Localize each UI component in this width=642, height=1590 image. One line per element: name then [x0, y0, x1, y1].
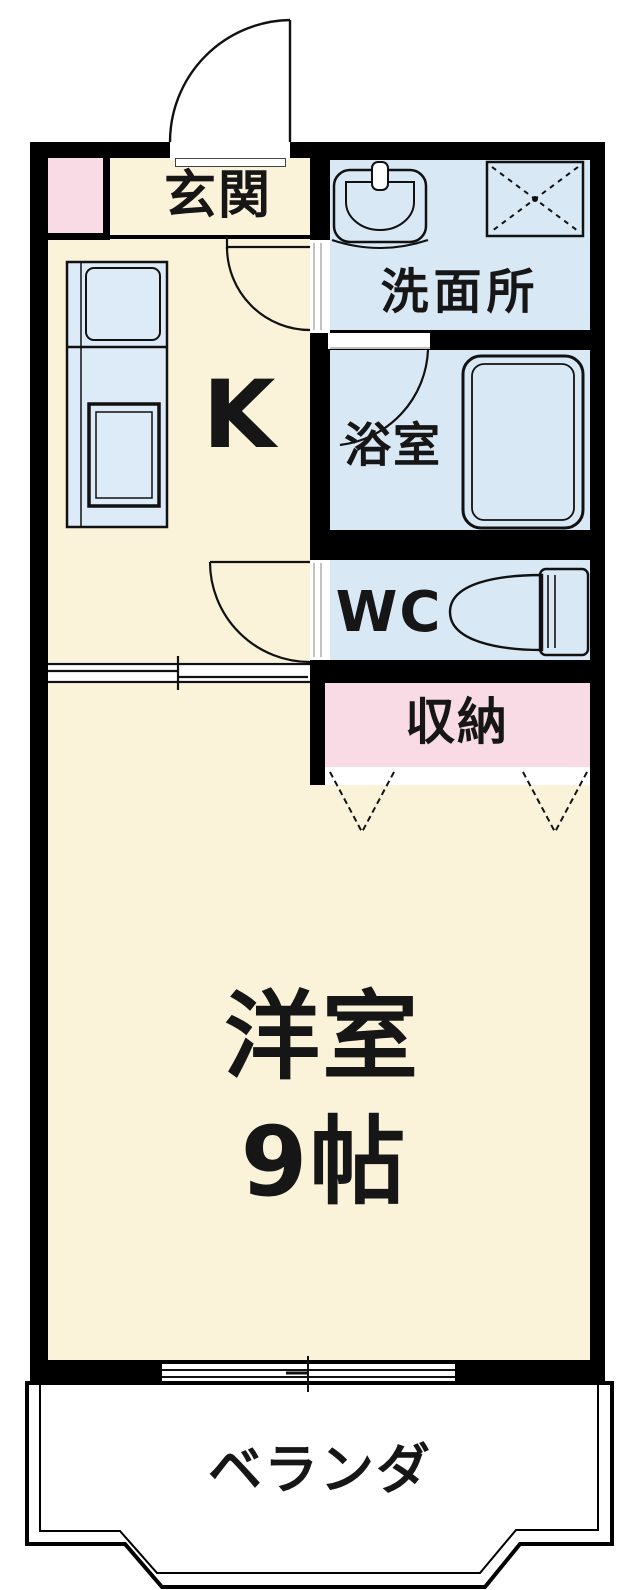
- sliding-door-band: [48, 662, 310, 684]
- shoe-cabinet-divider: [103, 158, 110, 240]
- washroom-door-opening: [310, 240, 330, 333]
- floor-plan: 玄関 洗面所 K 浴室 WC 収納 洋室 9帖 ベランダ: [0, 0, 642, 1590]
- bathroom-door-opening: [328, 333, 430, 349]
- entrance-door-icon: [170, 20, 290, 142]
- veranda-label: ベランダ: [208, 1443, 432, 1497]
- storage-label: 収納: [405, 697, 509, 747]
- western-room-label: 洋室: [224, 989, 420, 1085]
- genkan-label: 玄関: [164, 170, 272, 222]
- washroom-label: 洗面所: [380, 268, 539, 316]
- shoe-cabinet-base: [48, 233, 110, 240]
- kitchen-label: K: [203, 369, 278, 463]
- storage-opening: [325, 767, 590, 785]
- western-room-size: 9帖: [241, 1114, 408, 1210]
- bathroom-label: 浴室: [344, 423, 442, 470]
- window-opening: [162, 1364, 455, 1383]
- shoe-cabinet: [48, 158, 103, 233]
- entrance-step-line: [110, 235, 310, 239]
- wc-door-opening: [310, 560, 330, 660]
- wc-label: WC: [336, 585, 443, 641]
